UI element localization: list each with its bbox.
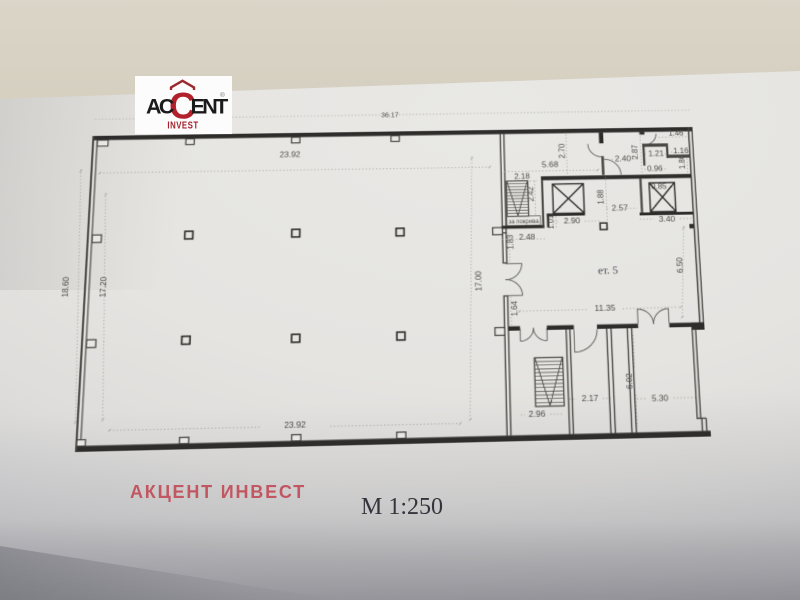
svg-text:5.30: 5.30 [652,393,670,403]
svg-text:AC: AC [146,95,174,119]
svg-text:17.00: 17.00 [474,270,484,291]
svg-text:2.90: 2.90 [564,216,581,225]
svg-text:6.02: 6.02 [625,373,635,389]
svg-text:1.46: 1.46 [668,129,683,138]
svg-text:2.42: 2.42 [526,187,536,202]
svg-text:1.21: 1.21 [648,149,664,158]
svg-text:23.92: 23.92 [284,420,307,430]
svg-text:1.83: 1.83 [506,235,516,250]
svg-text:ет. 5: ет. 5 [598,265,619,277]
svg-text:2.48: 2.48 [519,233,536,242]
svg-text:2.57: 2.57 [611,203,628,212]
svg-text:6.50: 6.50 [675,257,685,273]
svg-text:®: ® [220,91,225,99]
svg-text:23.92: 23.92 [280,150,301,159]
svg-text:11.35: 11.35 [594,303,616,313]
svg-text:17.20: 17.20 [98,276,109,297]
svg-text:0.96: 0.96 [647,164,663,173]
svg-text:1.88: 1.88 [596,190,606,205]
svg-text:2.70: 2.70 [557,143,567,159]
svg-text:36.17: 36.17 [381,112,399,119]
svg-text:2.40: 2.40 [615,154,632,163]
svg-text:1.16: 1.16 [673,146,689,155]
svg-text:2.87: 2.87 [630,145,640,160]
svg-text:2.18: 2.18 [514,172,530,181]
svg-text:за покрива: за покрива [508,219,539,225]
svg-text:3.40: 3.40 [659,215,676,224]
svg-text:1.80: 1.80 [677,155,687,169]
svg-text:1.64: 1.64 [510,301,520,316]
svg-text:1.01: 1.01 [546,215,556,229]
svg-text:0.85: 0.85 [651,182,667,191]
svg-text:2.96: 2.96 [529,409,547,419]
svg-text:18.60: 18.60 [60,276,71,297]
svg-text:2.17: 2.17 [582,393,600,403]
svg-text:5.68: 5.68 [541,159,558,169]
svg-text:INVEST: INVEST [167,120,198,131]
